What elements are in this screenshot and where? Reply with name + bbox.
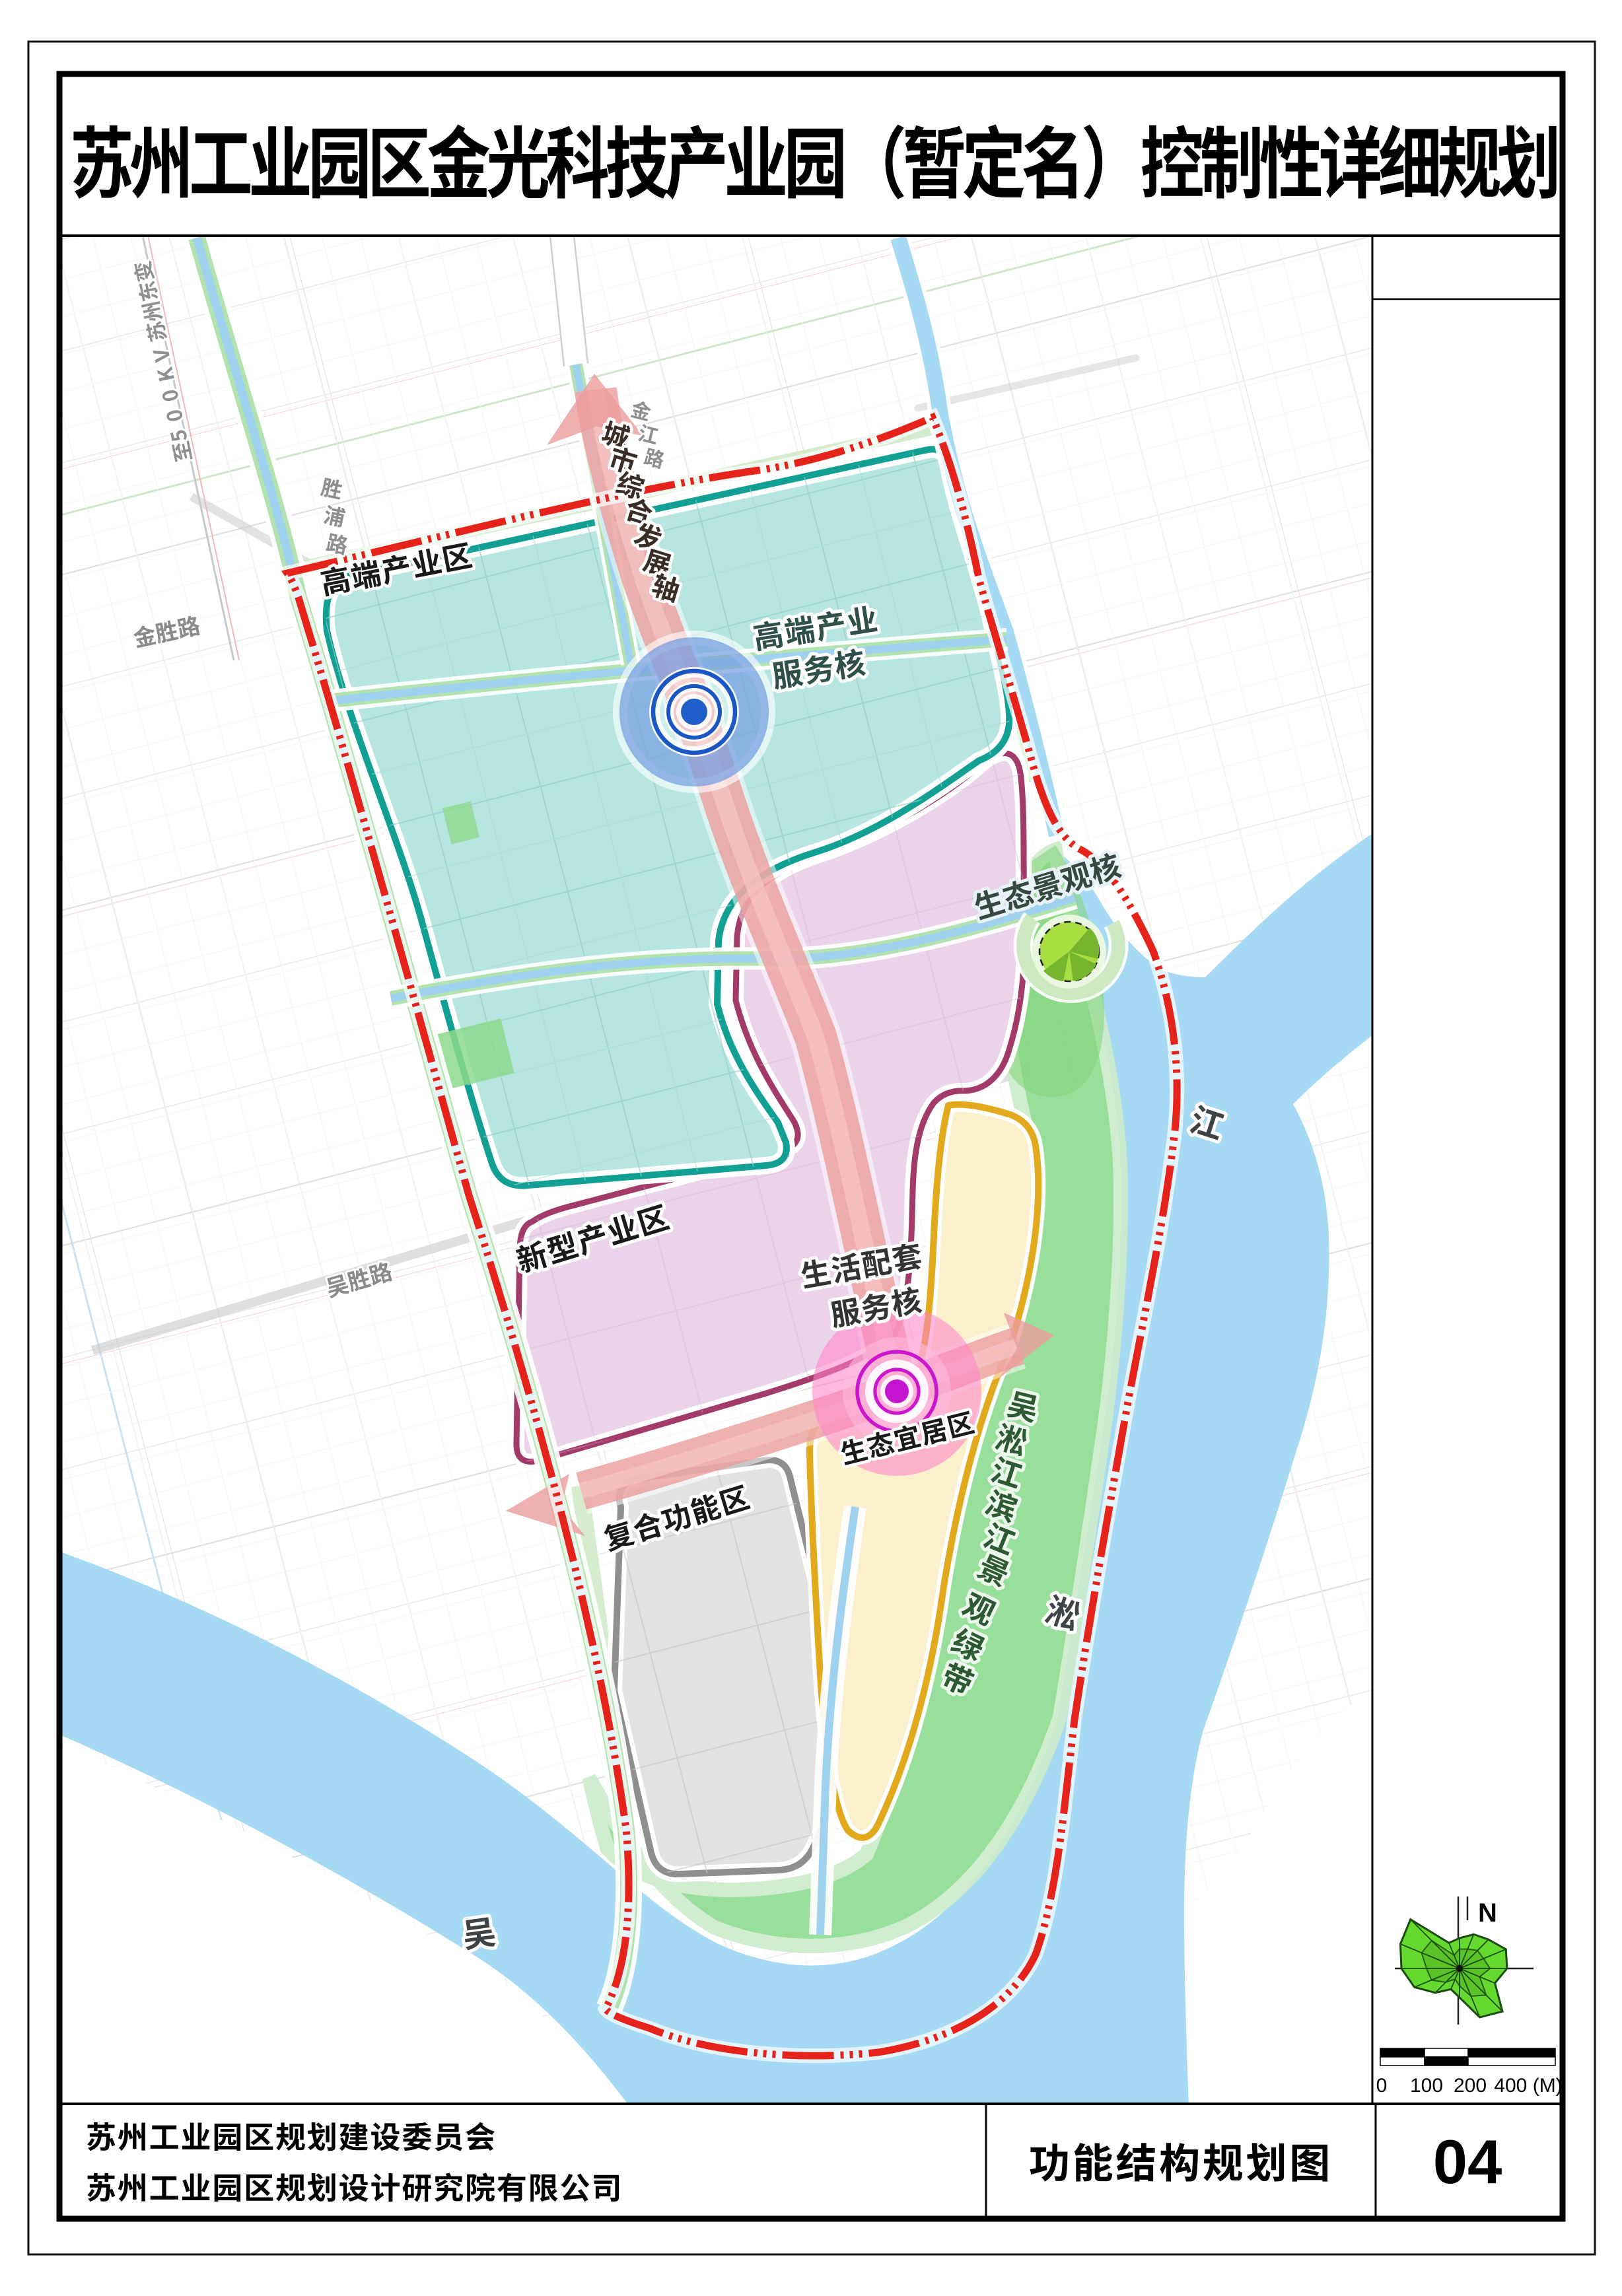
svg-text:04: 04 (1433, 2127, 1502, 2196)
svg-text:100: 100 (1410, 2075, 1443, 2097)
svg-text:200: 200 (1454, 2075, 1487, 2097)
svg-text:N: N (1478, 1898, 1497, 1928)
svg-text:400 (M): 400 (M) (1494, 2075, 1562, 2097)
svg-text:0: 0 (1376, 2075, 1388, 2097)
